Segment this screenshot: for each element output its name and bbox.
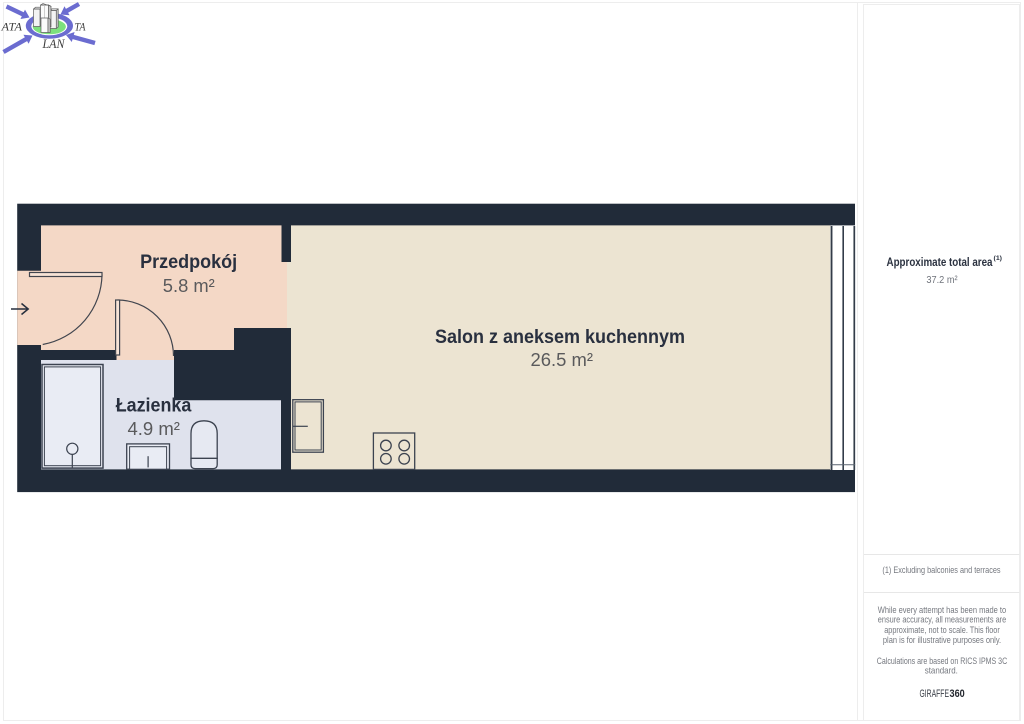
svg-text:Approximate total area: Approximate total area bbox=[887, 255, 993, 269]
svg-text:GIRAFFE: GIRAFFE bbox=[920, 688, 950, 700]
svg-text:(1) Excluding balconies and te: (1) Excluding balconies and terraces bbox=[882, 564, 1000, 575]
svg-text:standard.: standard. bbox=[925, 665, 958, 676]
svg-text:plan is for illustrative purpo: plan is for illustrative purposes only. bbox=[883, 634, 1001, 645]
svg-text:37.2 m²: 37.2 m² bbox=[926, 275, 958, 286]
svg-text:(1): (1) bbox=[994, 255, 1003, 262]
svg-text:360: 360 bbox=[950, 688, 965, 700]
